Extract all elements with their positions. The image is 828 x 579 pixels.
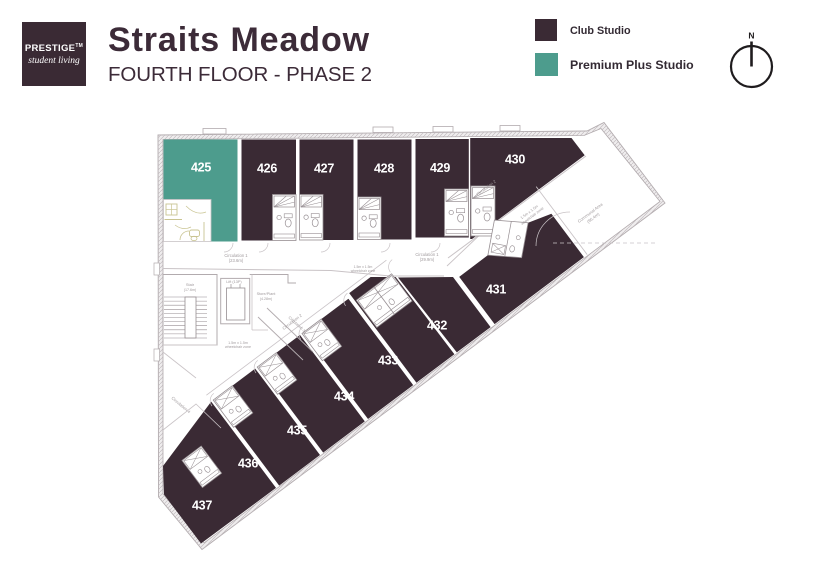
svg-text:427: 427 — [314, 162, 334, 176]
svg-text:(17.6m): (17.6m) — [184, 288, 196, 292]
svg-text:wheelchair zone: wheelchair zone — [351, 269, 376, 273]
svg-text:Stair: Stair — [186, 282, 195, 287]
svg-text:Store/Plant: Store/Plant — [257, 292, 277, 296]
svg-text:436: 436 — [238, 457, 258, 471]
svg-text:Lift (13P): Lift (13P) — [226, 280, 242, 284]
svg-text:(23.6m): (23.6m) — [229, 258, 244, 263]
svg-text:(29.9m): (29.9m) — [420, 257, 435, 262]
svg-text:429: 429 — [430, 161, 450, 175]
svg-text:425: 425 — [191, 161, 211, 175]
svg-text:437: 437 — [192, 499, 212, 513]
svg-text:426: 426 — [257, 162, 277, 176]
svg-text:430: 430 — [505, 153, 525, 167]
svg-text:428: 428 — [374, 162, 394, 176]
svg-text:432: 432 — [427, 319, 447, 333]
svg-text:434: 434 — [334, 390, 354, 404]
svg-text:435: 435 — [287, 424, 307, 438]
svg-text:(4.28m): (4.28m) — [260, 297, 272, 301]
svg-text:431: 431 — [486, 283, 506, 297]
svg-text:wheelchair zone: wheelchair zone — [225, 345, 251, 349]
svg-text:433: 433 — [378, 354, 398, 368]
